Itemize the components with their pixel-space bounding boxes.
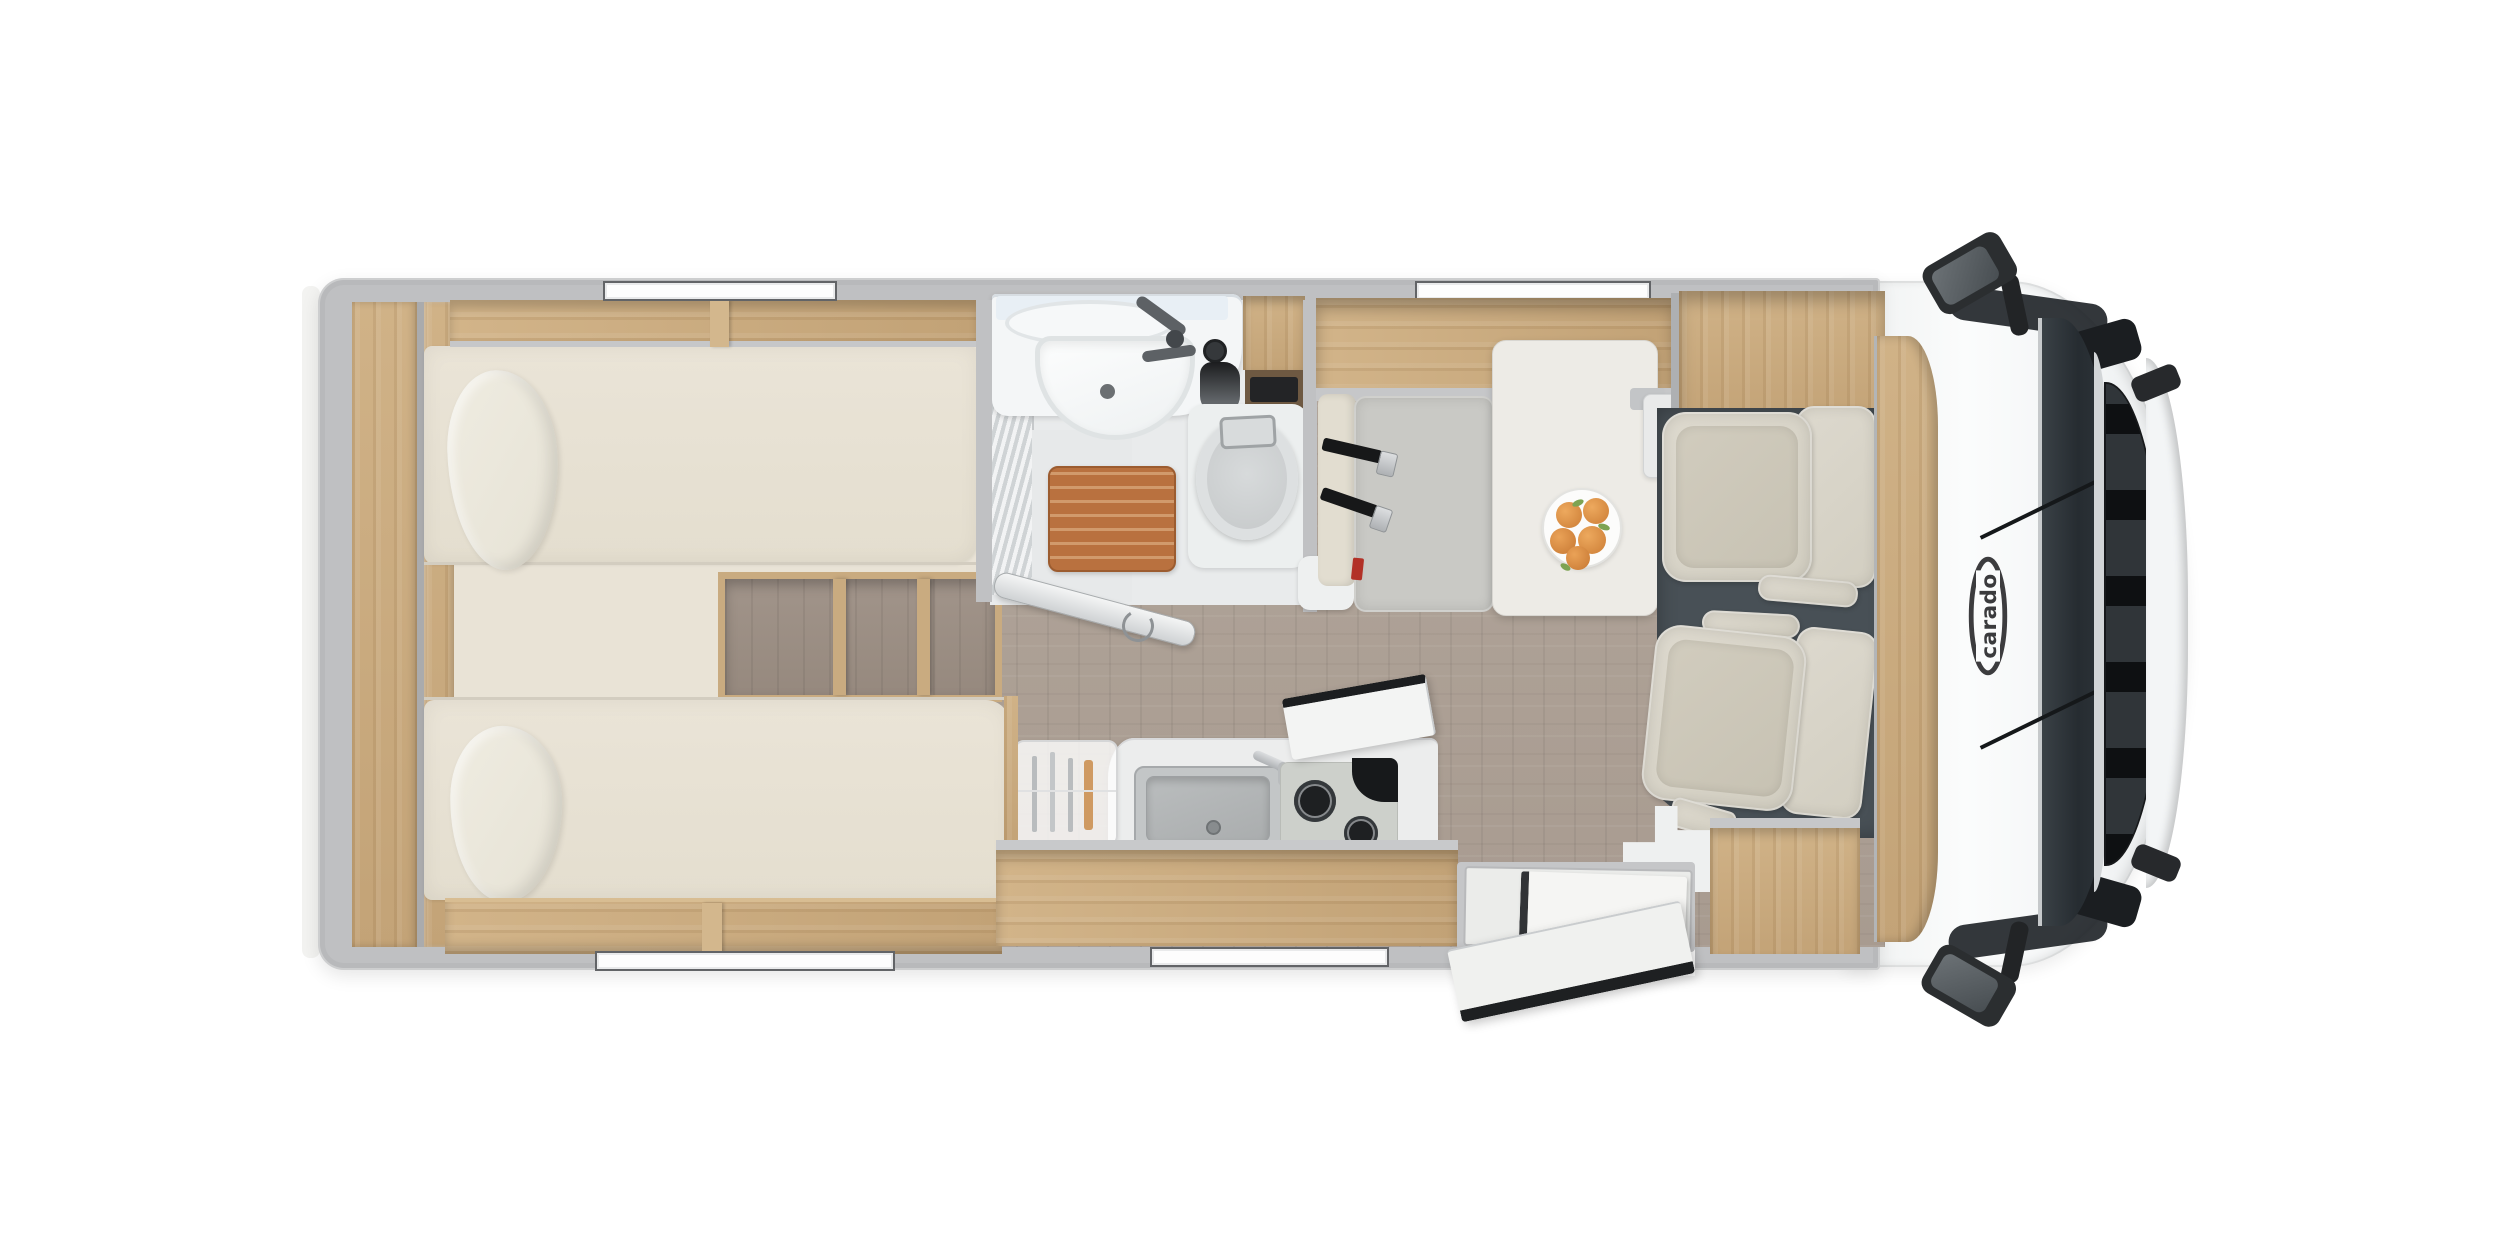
entry-cabinet xyxy=(1710,828,1860,954)
niche-divider-1 xyxy=(833,579,846,695)
window-top-rear xyxy=(603,281,837,301)
window-bottom-kitchen xyxy=(1150,947,1389,967)
dashboard-band xyxy=(1874,336,1938,942)
fruit-2 xyxy=(1583,498,1609,524)
dish-rack-utensil-2 xyxy=(1050,752,1055,832)
kitchen-cabinet-front xyxy=(996,850,1458,946)
vanity-knob xyxy=(1203,339,1227,363)
bathroom-cabinet-slot xyxy=(1250,377,1298,402)
dish-rack-utensil-3 xyxy=(1068,758,1073,832)
seatbelt-red-tab xyxy=(1351,557,1364,580)
seat-cushion-inner xyxy=(1676,426,1798,568)
bed-rail-bottom-wall xyxy=(445,898,1002,954)
bed-rail-bottom-divider xyxy=(702,903,722,954)
niche-divider-2 xyxy=(917,579,930,695)
seat-cushion-inner xyxy=(1655,638,1796,798)
dish-rack-utensil-wood xyxy=(1084,760,1093,830)
dish-rack-utensil-1 xyxy=(1032,756,1037,832)
window-bottom-rear xyxy=(595,951,895,971)
brand-logo: carado xyxy=(1968,556,2008,676)
sink-drain xyxy=(1100,384,1115,399)
shower-wood-mat xyxy=(1048,466,1176,572)
floorplan-canvas: carado xyxy=(0,0,2500,1250)
cab-seat-driver xyxy=(1630,602,1895,838)
bed-rail-top-divider xyxy=(710,300,729,347)
kitchen-sink-drain xyxy=(1206,820,1221,835)
cab-seat-passenger xyxy=(1658,398,1884,610)
toilet-lid xyxy=(1219,415,1277,450)
front-bumper xyxy=(2146,358,2188,888)
bathroom-wood-niche xyxy=(1243,296,1305,370)
bath-faucet-base xyxy=(1166,330,1184,348)
dinette-table xyxy=(1492,340,1658,616)
dish-rack-grid-line xyxy=(1016,790,1116,792)
brand-logo-text: carado xyxy=(1977,573,2002,658)
kitchen-side-column xyxy=(1004,696,1018,846)
bed-step-niche xyxy=(718,572,1002,702)
hob-burner-large xyxy=(1294,780,1336,822)
rear-wardrobe-panel xyxy=(352,302,418,947)
dish-rack xyxy=(1014,740,1118,846)
carado-logo-icon: carado xyxy=(1968,556,2008,676)
bed-seam-bottom xyxy=(424,697,1010,700)
wall-bedroom-bathroom xyxy=(976,300,992,602)
brand-logo-rotated: carado xyxy=(1968,556,2008,676)
